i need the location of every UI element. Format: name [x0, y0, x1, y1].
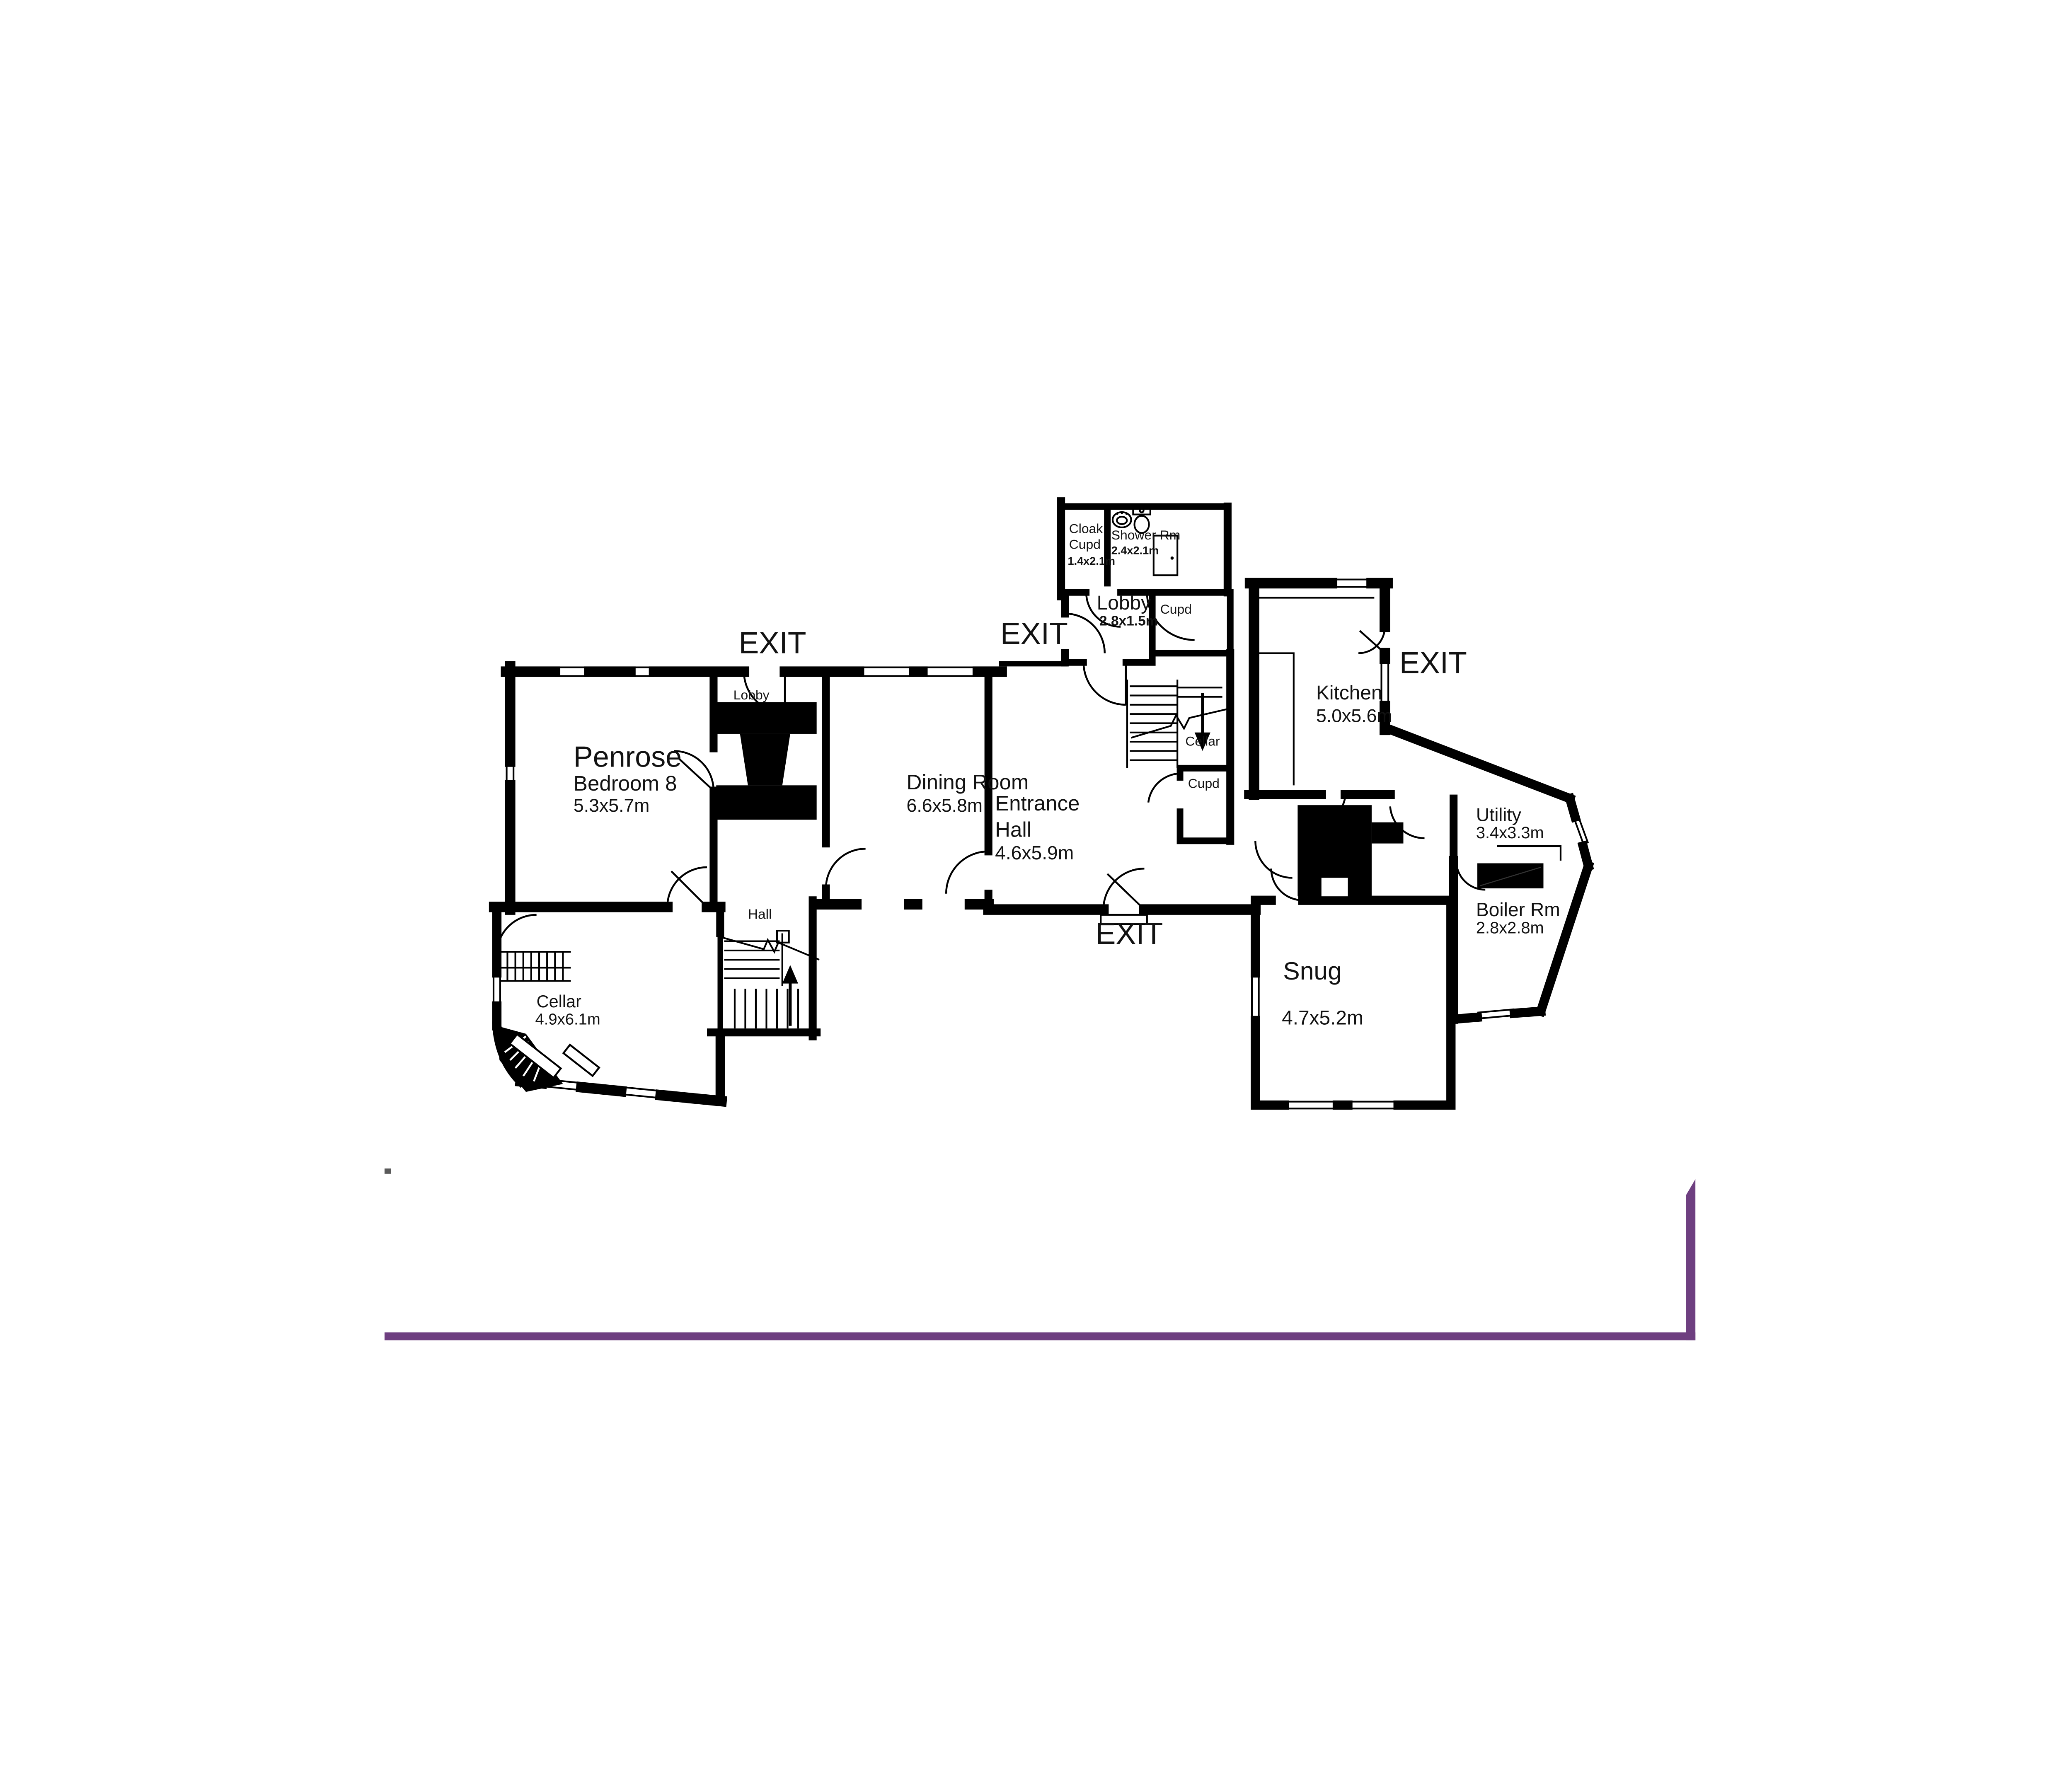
- room-label-snug: Snug: [1283, 957, 1341, 985]
- stairs: [499, 680, 1229, 1078]
- sink-tap-dot3: [1126, 513, 1128, 515]
- room-dims-boiler: 2.8x2.8m: [1476, 919, 1544, 937]
- room-dims-bedroom: 5.3x5.7m: [574, 796, 650, 816]
- room-dims-snug: 4.7x5.2m: [1282, 1007, 1363, 1029]
- bedroom-hall-door: [667, 867, 707, 907]
- floor-plan-page: Penrose Bedroom 8 5.3x5.7m Dining Room 6…: [0, 0, 2072, 1790]
- exit-label-bottom: EXIT: [1095, 917, 1163, 951]
- room-label-cloak-line2: Cupd: [1069, 537, 1101, 552]
- room-label-kitchen: Kitchen: [1316, 682, 1382, 704]
- floor-plan-canvas: Penrose Bedroom 8 5.3x5.7m Dining Room 6…: [0, 0, 2072, 1790]
- boiler-counter: [1477, 863, 1543, 888]
- room-label-utility: Utility: [1476, 805, 1522, 825]
- room-label-bedroom: Bedroom 8: [574, 772, 677, 795]
- utility-worktop: [1497, 846, 1561, 861]
- room-label-entrance-line2: Hall: [995, 818, 1031, 842]
- room-label-entrance-line1: Entrance: [995, 791, 1080, 815]
- bedroom-chimney-bottom: [716, 785, 816, 820]
- label-cellar-stairs: Cellar: [1185, 734, 1220, 749]
- lobby-hall-door: [1084, 663, 1126, 705]
- room-label-cellar: Cellar: [537, 992, 581, 1011]
- room-label-lobby: Lobby: [1097, 592, 1151, 614]
- room-dims-lobby: 2.8x1.5m: [1099, 613, 1158, 629]
- room-dims-cellar: 4.9x6.1m: [535, 1011, 600, 1028]
- cellar-ladder-2: [564, 1045, 599, 1076]
- dining-hall-door: [946, 851, 988, 894]
- sink-icon: [1113, 512, 1131, 527]
- dining-west-door: [826, 849, 866, 888]
- label-cupd-lower: Cupd: [1188, 776, 1220, 791]
- page-border: [385, 1168, 1695, 1340]
- front-door: [1104, 868, 1145, 910]
- room-dims-utility: 3.4x3.3m: [1476, 824, 1544, 842]
- room-dims-cloak: 1.4x2.1m: [1068, 554, 1116, 567]
- border-right-bar: [1686, 1179, 1695, 1340]
- sink-tap-dot2: [1121, 512, 1123, 514]
- label-hall: Hall: [748, 907, 772, 922]
- label-lobby-small: Lobby: [733, 687, 770, 702]
- cellar-stairs-treads: [1127, 680, 1222, 768]
- label-cupd-upper: Cupd: [1160, 602, 1192, 617]
- room-dims-entrance: 4.6x5.9m: [995, 842, 1074, 864]
- room-label-boiler: Boiler Rm: [1476, 899, 1560, 920]
- cellar-straight-stairs: [499, 952, 571, 981]
- labels: Penrose Bedroom 8 5.3x5.7m Dining Room 6…: [535, 521, 1560, 1029]
- border-bottom-bar: [385, 1332, 1695, 1340]
- bedroom-chimney-top: [716, 702, 816, 734]
- toilet-button-icon: [1140, 509, 1144, 513]
- exit-label-right: EXIT: [1399, 646, 1467, 680]
- room-dims-dining: 6.6x5.8m: [907, 796, 983, 816]
- border-start-tick: [385, 1168, 391, 1174]
- hall-stairs-arrow-head: [782, 965, 798, 984]
- central-chimney-alcove: [1322, 878, 1348, 897]
- cupd-lower-door: [1148, 774, 1180, 803]
- room-label-dining: Dining Room: [907, 770, 1029, 794]
- exit-label-top-left: EXIT: [739, 626, 806, 660]
- sink-basin-icon: [1117, 517, 1127, 524]
- room-dims-shower: 2.4x2.1m: [1111, 544, 1159, 556]
- exit-label-top-mid: EXIT: [1000, 617, 1068, 651]
- property-name-label: Penrose: [574, 740, 682, 773]
- room-label-cloak-line1: Cloak: [1069, 521, 1103, 536]
- wall-interior: [711, 501, 1454, 1036]
- shower-door-knob: [1171, 556, 1174, 560]
- bedroom-chimney-stack: [740, 734, 790, 785]
- cellar-door: [497, 915, 537, 955]
- sink-tap-dot1: [1116, 513, 1118, 515]
- hall-snug-passage-door: [1255, 841, 1292, 878]
- room-dims-kitchen: 5.0x5.6m: [1316, 706, 1392, 726]
- room-label-shower: Shower Rm: [1111, 527, 1181, 542]
